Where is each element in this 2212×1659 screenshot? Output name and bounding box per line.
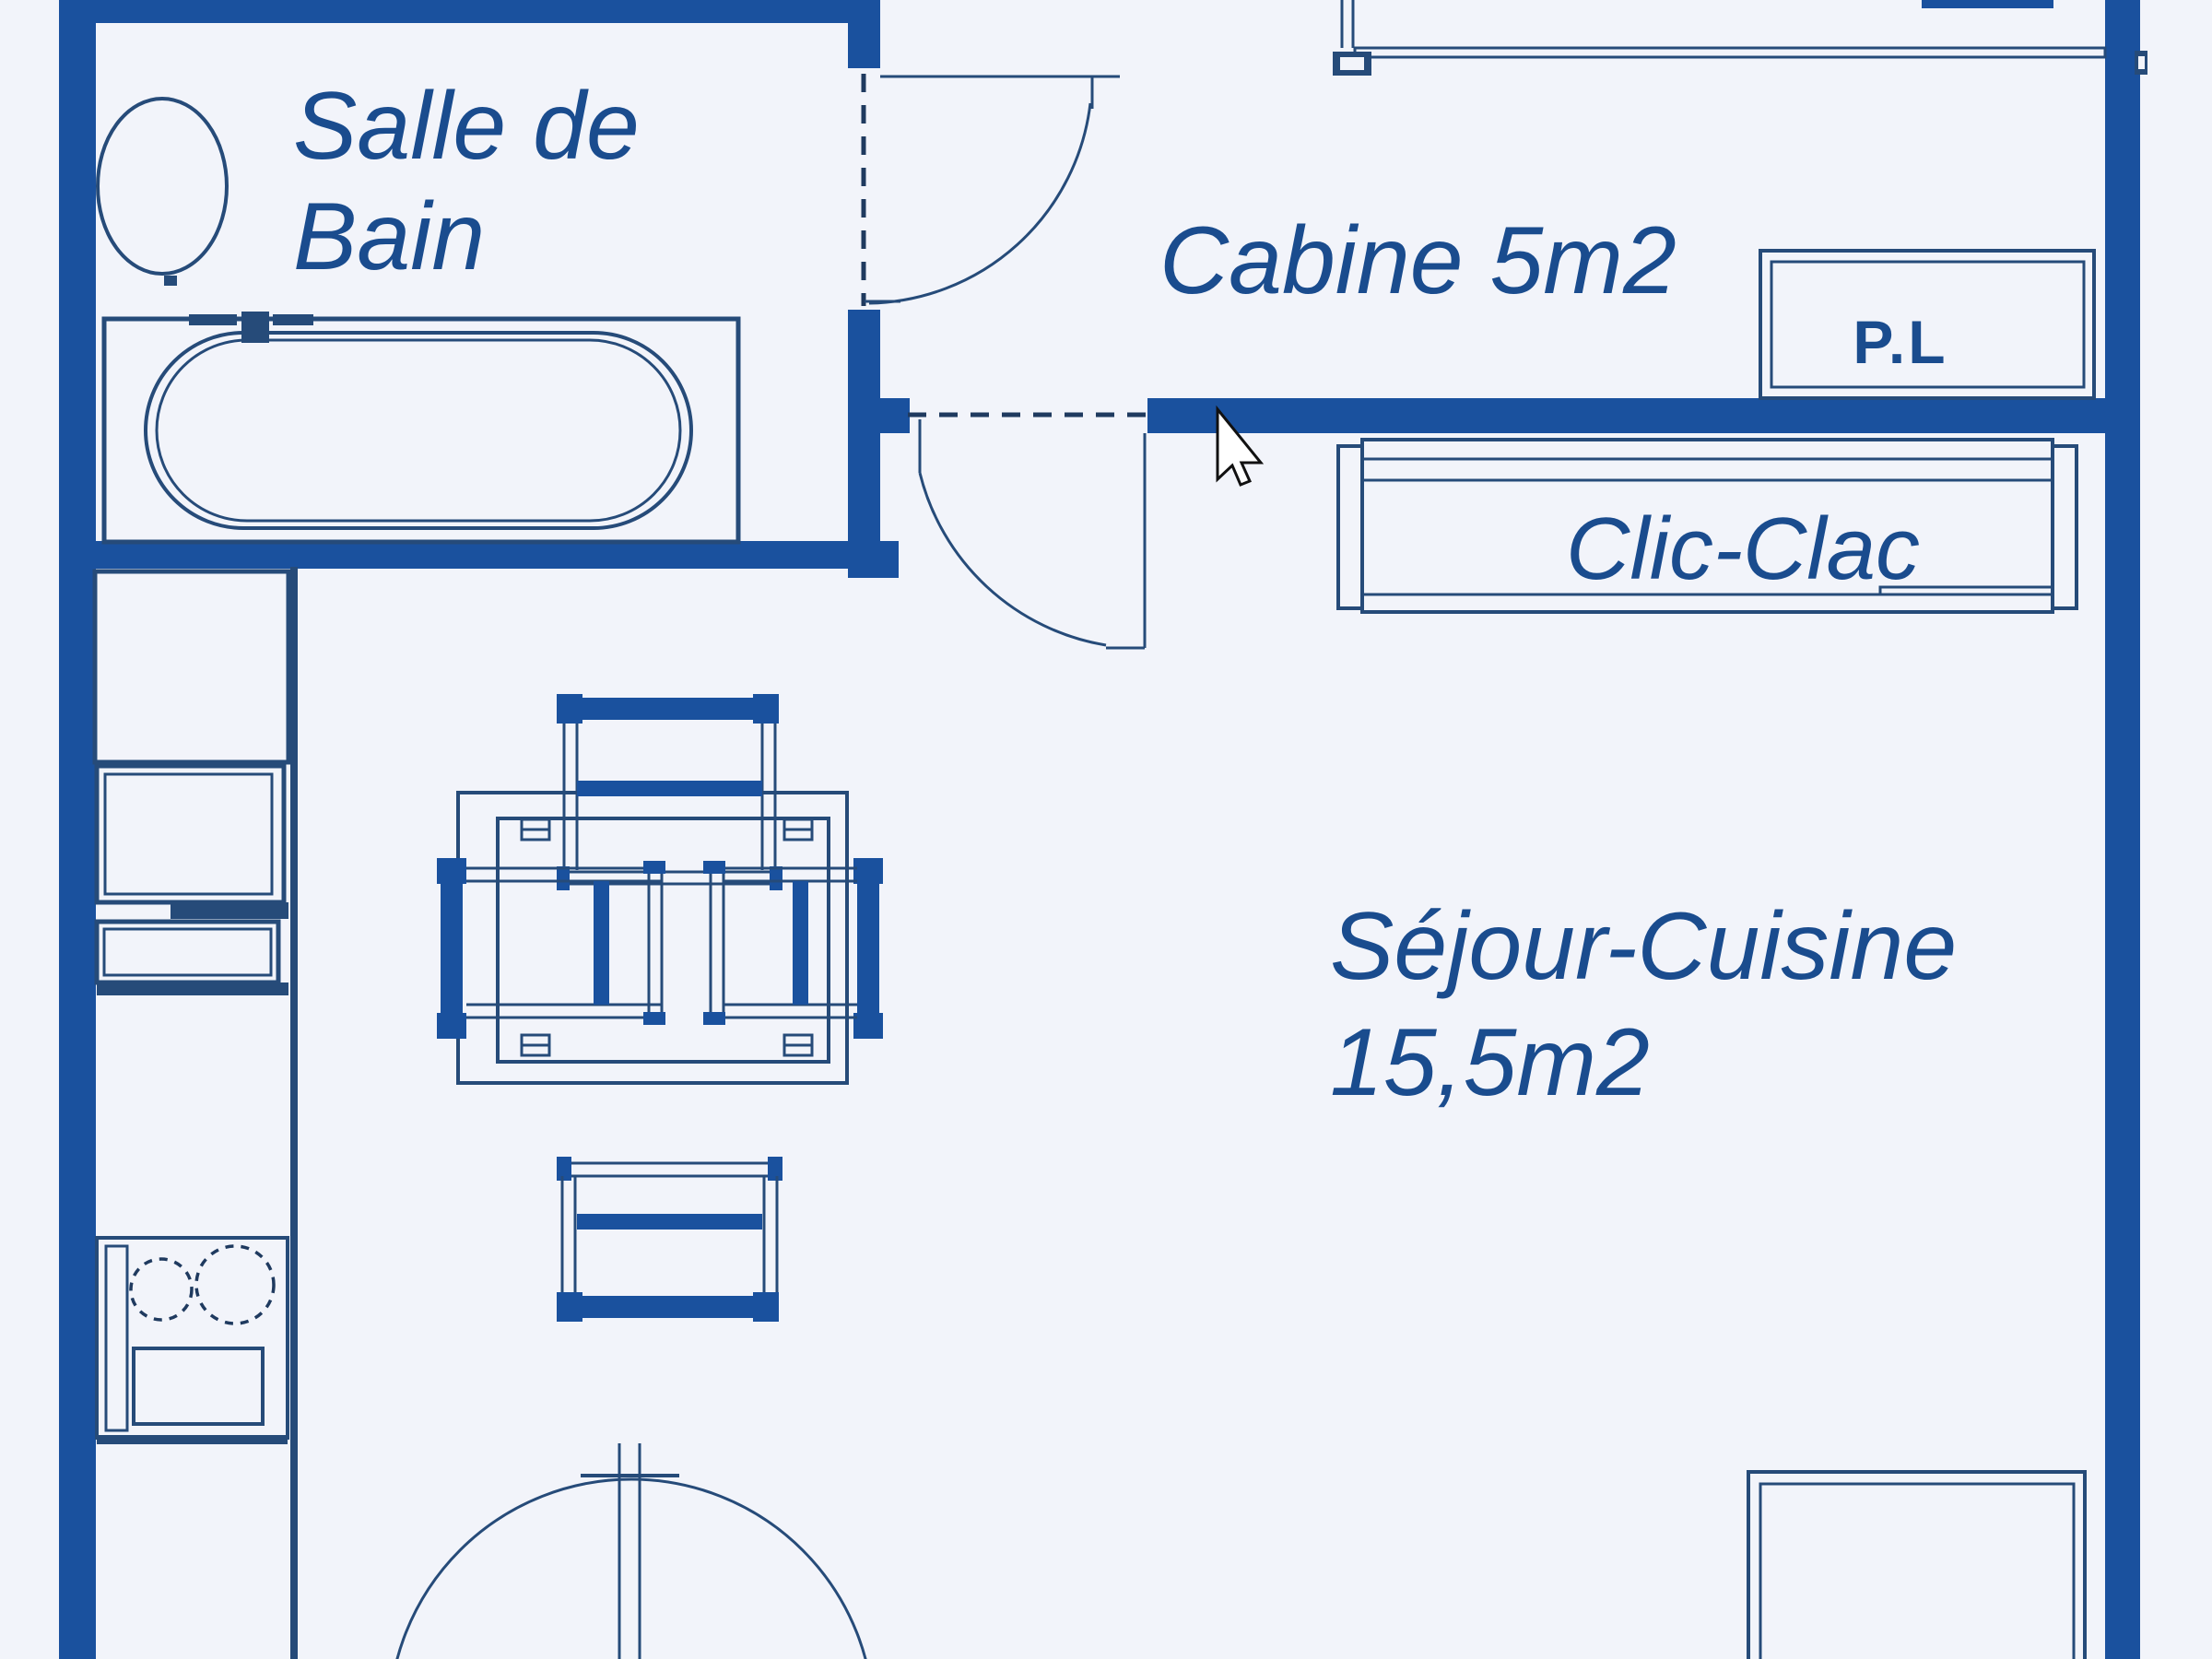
sofa-arm-left (1338, 446, 1362, 608)
closet-pl: P.L (1760, 251, 2094, 398)
wall-hall-stub-bottom (848, 310, 880, 541)
railing-rail (1355, 48, 2105, 57)
toilet-dot (164, 276, 177, 286)
wall-top-window-bar (1922, 0, 2053, 8)
bathroom-label-line1: Salle de (293, 73, 640, 180)
chair-south (557, 1157, 782, 1322)
chair-north (557, 694, 782, 890)
drawer-separator (97, 982, 288, 995)
wall-right-exterior (2105, 0, 2140, 1659)
fridge-outline (95, 571, 288, 762)
wall-hall-tab (880, 398, 910, 433)
cooktop-outline (97, 1238, 288, 1438)
round-table (389, 1443, 874, 1659)
toilet-bowl (98, 99, 227, 274)
bathroom-door (864, 74, 1120, 306)
sofa-clic-clac: Clic-Clac (1338, 440, 2077, 612)
sofa-arm-right (2053, 446, 2077, 608)
cooktop-separator (97, 1435, 288, 1444)
bathtub (104, 312, 738, 542)
wall-bathroom-bottom (59, 541, 899, 569)
sejour-door (908, 415, 1146, 648)
kitchen-fridge (95, 571, 288, 762)
drawer-outline (97, 922, 278, 982)
kitchen-cooktop (97, 1238, 288, 1444)
sejour-door-swing-arc (920, 473, 1106, 645)
kitchen-oven (97, 766, 288, 919)
wall-hall-stub-top (848, 0, 880, 68)
sejour-label-line1: Séjour-Cuisine (1330, 893, 1957, 1000)
table-top-outer (458, 793, 847, 1083)
oven-separator (171, 902, 288, 919)
railing-post (1342, 0, 1353, 48)
cabine-label: Cabine 5m2 (1159, 207, 1677, 314)
floorplan: Clic-Clac P.L Salle de Bain Cabine 5m2 S… (0, 0, 2212, 1659)
counter-edge-line (290, 567, 298, 1659)
bathtub-edge-seg-left (189, 314, 237, 325)
round-table-top (389, 1479, 874, 1659)
cabinet-bottom-right (1748, 1472, 2085, 1659)
bathtub-faucet (241, 312, 269, 343)
cooktop-handle (106, 1246, 127, 1430)
balcony-railing (1333, 0, 2147, 76)
bathtub-rim-inner (157, 340, 680, 521)
bathroom-label-line2: Bain (293, 183, 485, 290)
cabinet-inner (1760, 1484, 2074, 1659)
oven-door (105, 774, 272, 894)
oven-outline (97, 766, 284, 902)
wall-left-exterior (59, 0, 96, 1659)
cabinet-outer (1748, 1472, 2085, 1659)
closet-label: P.L (1853, 308, 1947, 376)
bathtub-edge-seg-right (273, 314, 313, 325)
kitchen-counter (290, 567, 298, 1659)
bathtub-rim-outer (146, 333, 691, 528)
bathroom-door-swing-arc (869, 103, 1090, 303)
dining-table (458, 793, 847, 1083)
sofa-label: Clic-Clac (1566, 500, 1920, 598)
kitchen-drawer (97, 922, 288, 995)
wall-top (59, 0, 848, 23)
cooktop-burner-small (131, 1259, 192, 1320)
cooktop-burner-large (196, 1246, 274, 1324)
sejour-label-line2: 15,5m2 (1330, 1009, 1650, 1116)
floorplan-canvas: Clic-Clac P.L Salle de Bain Cabine 5m2 S… (0, 0, 2212, 1659)
sofa-back-lines (1362, 459, 2053, 480)
wall-cabine-bottom (1147, 398, 2105, 433)
cooktop-oven-door (134, 1348, 263, 1424)
toilet (98, 99, 227, 286)
drawer-front (104, 929, 271, 975)
